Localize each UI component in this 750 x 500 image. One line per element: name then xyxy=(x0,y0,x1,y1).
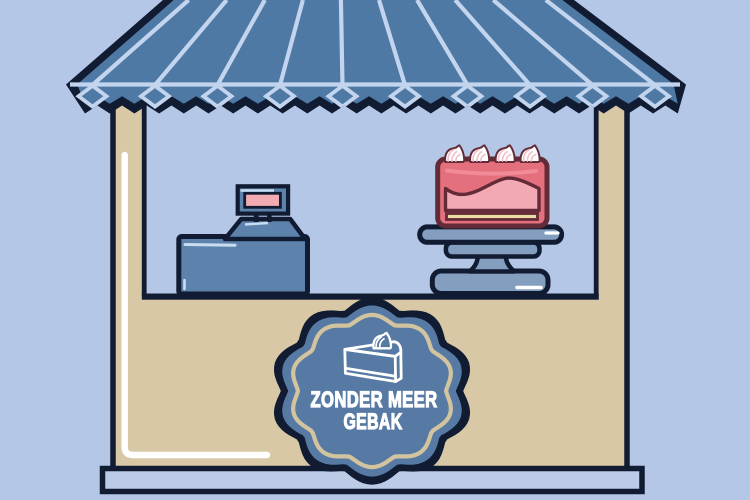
svg-text:GEBAK: GEBAK xyxy=(344,409,403,434)
